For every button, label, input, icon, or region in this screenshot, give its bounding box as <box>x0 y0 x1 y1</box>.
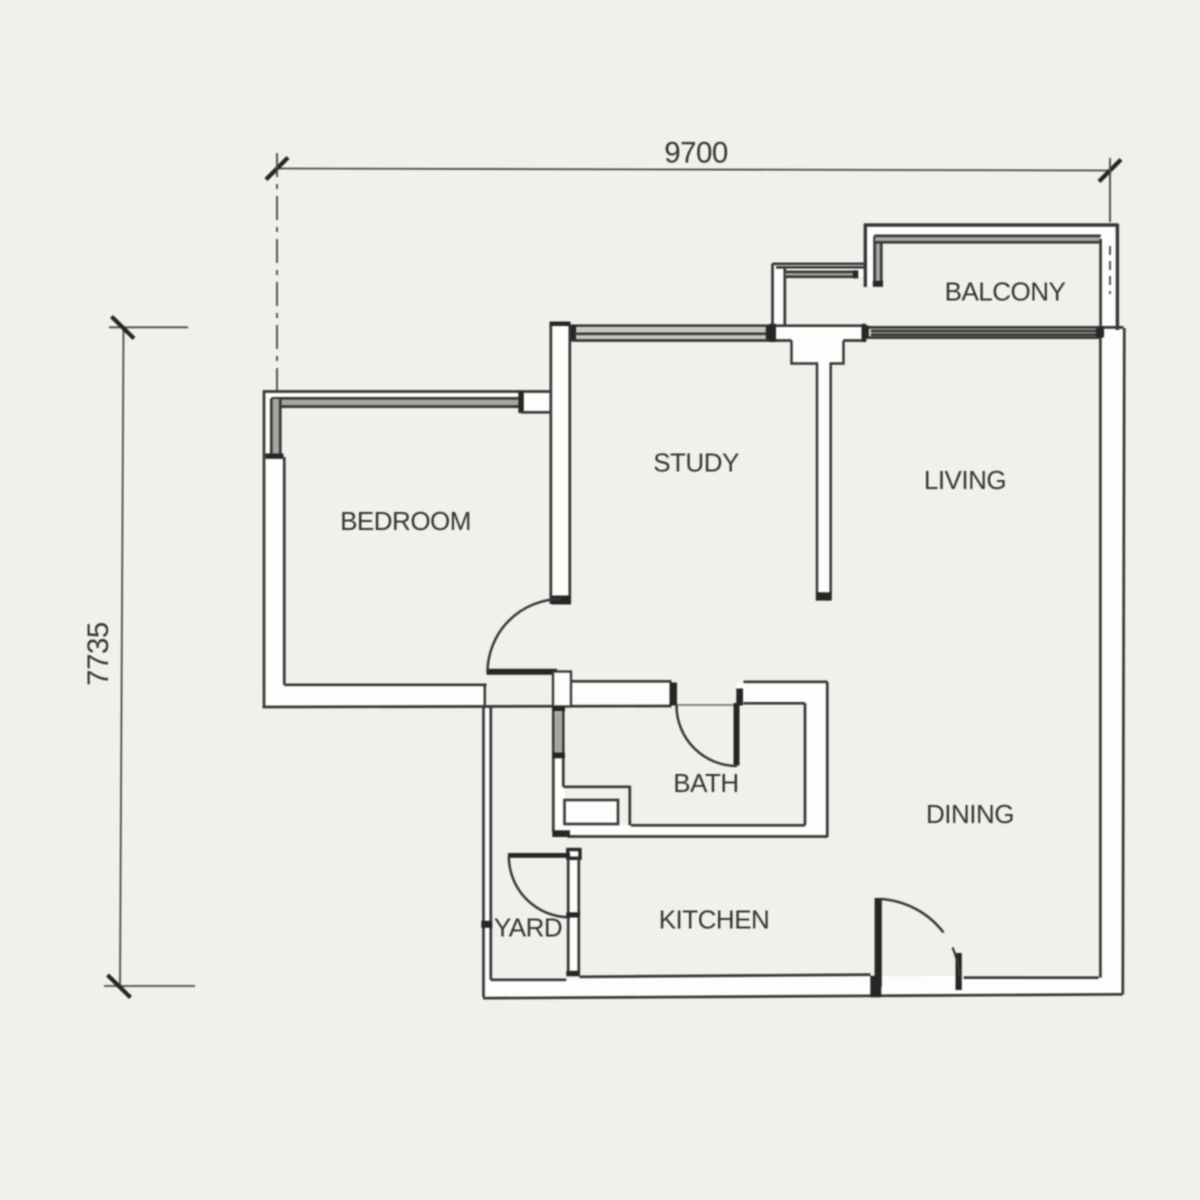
svg-text:BATH: BATH <box>673 768 738 798</box>
svg-text:STUDY: STUDY <box>653 448 739 478</box>
svg-text:KITCHEN: KITCHEN <box>659 905 770 935</box>
svg-text:YARD: YARD <box>494 913 562 943</box>
svg-text:BALCONY: BALCONY <box>945 277 1066 307</box>
svg-text:LIVING: LIVING <box>924 465 1006 495</box>
svg-text:9700: 9700 <box>664 137 728 170</box>
svg-text:DINING: DINING <box>926 799 1014 829</box>
svg-text:BEDROOM: BEDROOM <box>340 506 471 536</box>
svg-text:7735: 7735 <box>82 622 115 686</box>
